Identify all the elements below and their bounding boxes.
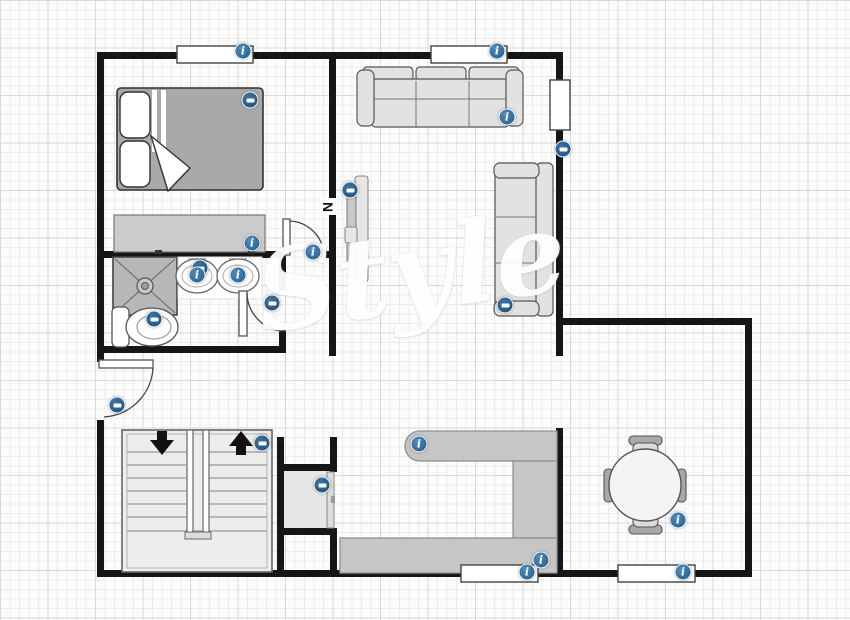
wall-left-lower [97,420,104,577]
window-living-right-icon[interactable] [555,141,572,158]
closet-door-icon[interactable] [314,477,331,494]
wall-left-upper [97,52,104,362]
tv-icon[interactable] [342,182,359,199]
wall-dining-right [745,318,752,577]
dining-table-icon[interactable]: i [670,512,687,529]
kitchen-counter[interactable] [340,431,557,573]
dresser[interactable] [114,215,265,254]
window-living-right[interactable] [550,80,570,130]
toilet-icon[interactable] [146,311,163,328]
front-door[interactable] [99,360,153,417]
dresser-icon[interactable]: i [244,235,261,252]
dining-table[interactable] [609,449,681,521]
wall-closet-bottom [277,528,337,535]
sink-right-icon[interactable]: i [230,267,247,284]
sofa-right-icon[interactable] [497,297,514,314]
floor-plan-canvas: N Style iiiiiiiiiiii [0,0,850,620]
front-door-icon[interactable] [109,397,126,414]
double-bed[interactable] [117,88,263,191]
shower[interactable] [113,257,177,315]
window-dining-bottom-icon[interactable]: i [675,564,692,581]
kitchen-extra-icon[interactable]: i [533,552,550,569]
window-bedroom-top-icon[interactable]: i [235,43,252,60]
bed-icon[interactable] [242,92,259,109]
wall-closet-top [277,464,337,471]
stairs-icon[interactable] [254,435,271,452]
bedroom-door-icon[interactable]: i [305,244,322,261]
window-kitchen-bottom-icon[interactable]: i [519,564,536,581]
toilet[interactable] [112,307,178,347]
wall-closet-left [277,437,284,577]
kitchen-counter-icon[interactable]: i [411,436,428,453]
stair-center-railing [187,430,193,534]
wall-dining-north [556,318,752,325]
wall-bath-right-upper [279,251,286,291]
sofa-living-icon[interactable]: i [499,109,516,126]
floor-plan-drawing: N [0,0,850,620]
bathroom-door-icon[interactable] [264,295,281,312]
window-living-top-icon[interactable]: i [489,43,506,60]
staircase[interactable] [122,430,272,572]
wall-closet-right-bottom [330,528,337,577]
sink-left-icon[interactable]: i [189,267,206,284]
compass-north: N [320,198,337,215]
sofa-two-seat[interactable] [494,163,553,316]
compass-label: N [320,202,336,212]
